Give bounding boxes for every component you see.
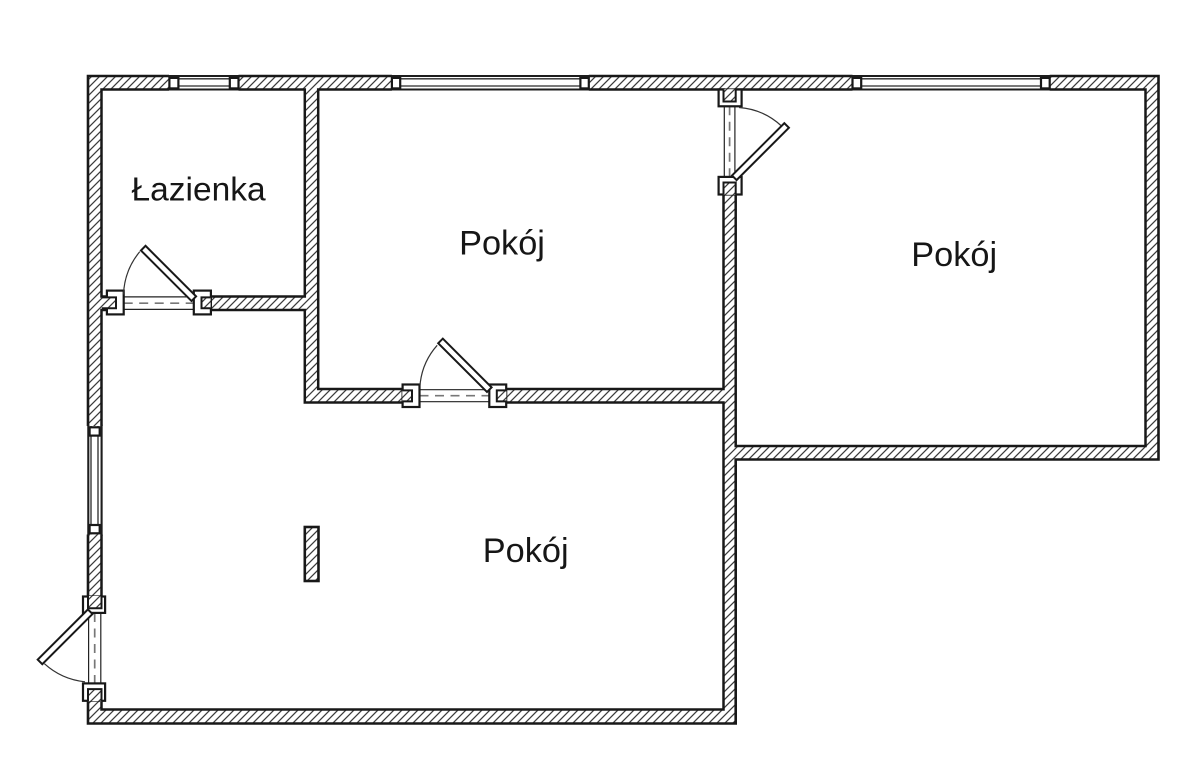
svg-text:Pokój: Pokój: [911, 236, 997, 274]
svg-text:Pokój: Pokój: [483, 532, 569, 570]
svg-text:Łazienka: Łazienka: [132, 171, 266, 208]
svg-text:Pokój: Pokój: [459, 224, 545, 262]
